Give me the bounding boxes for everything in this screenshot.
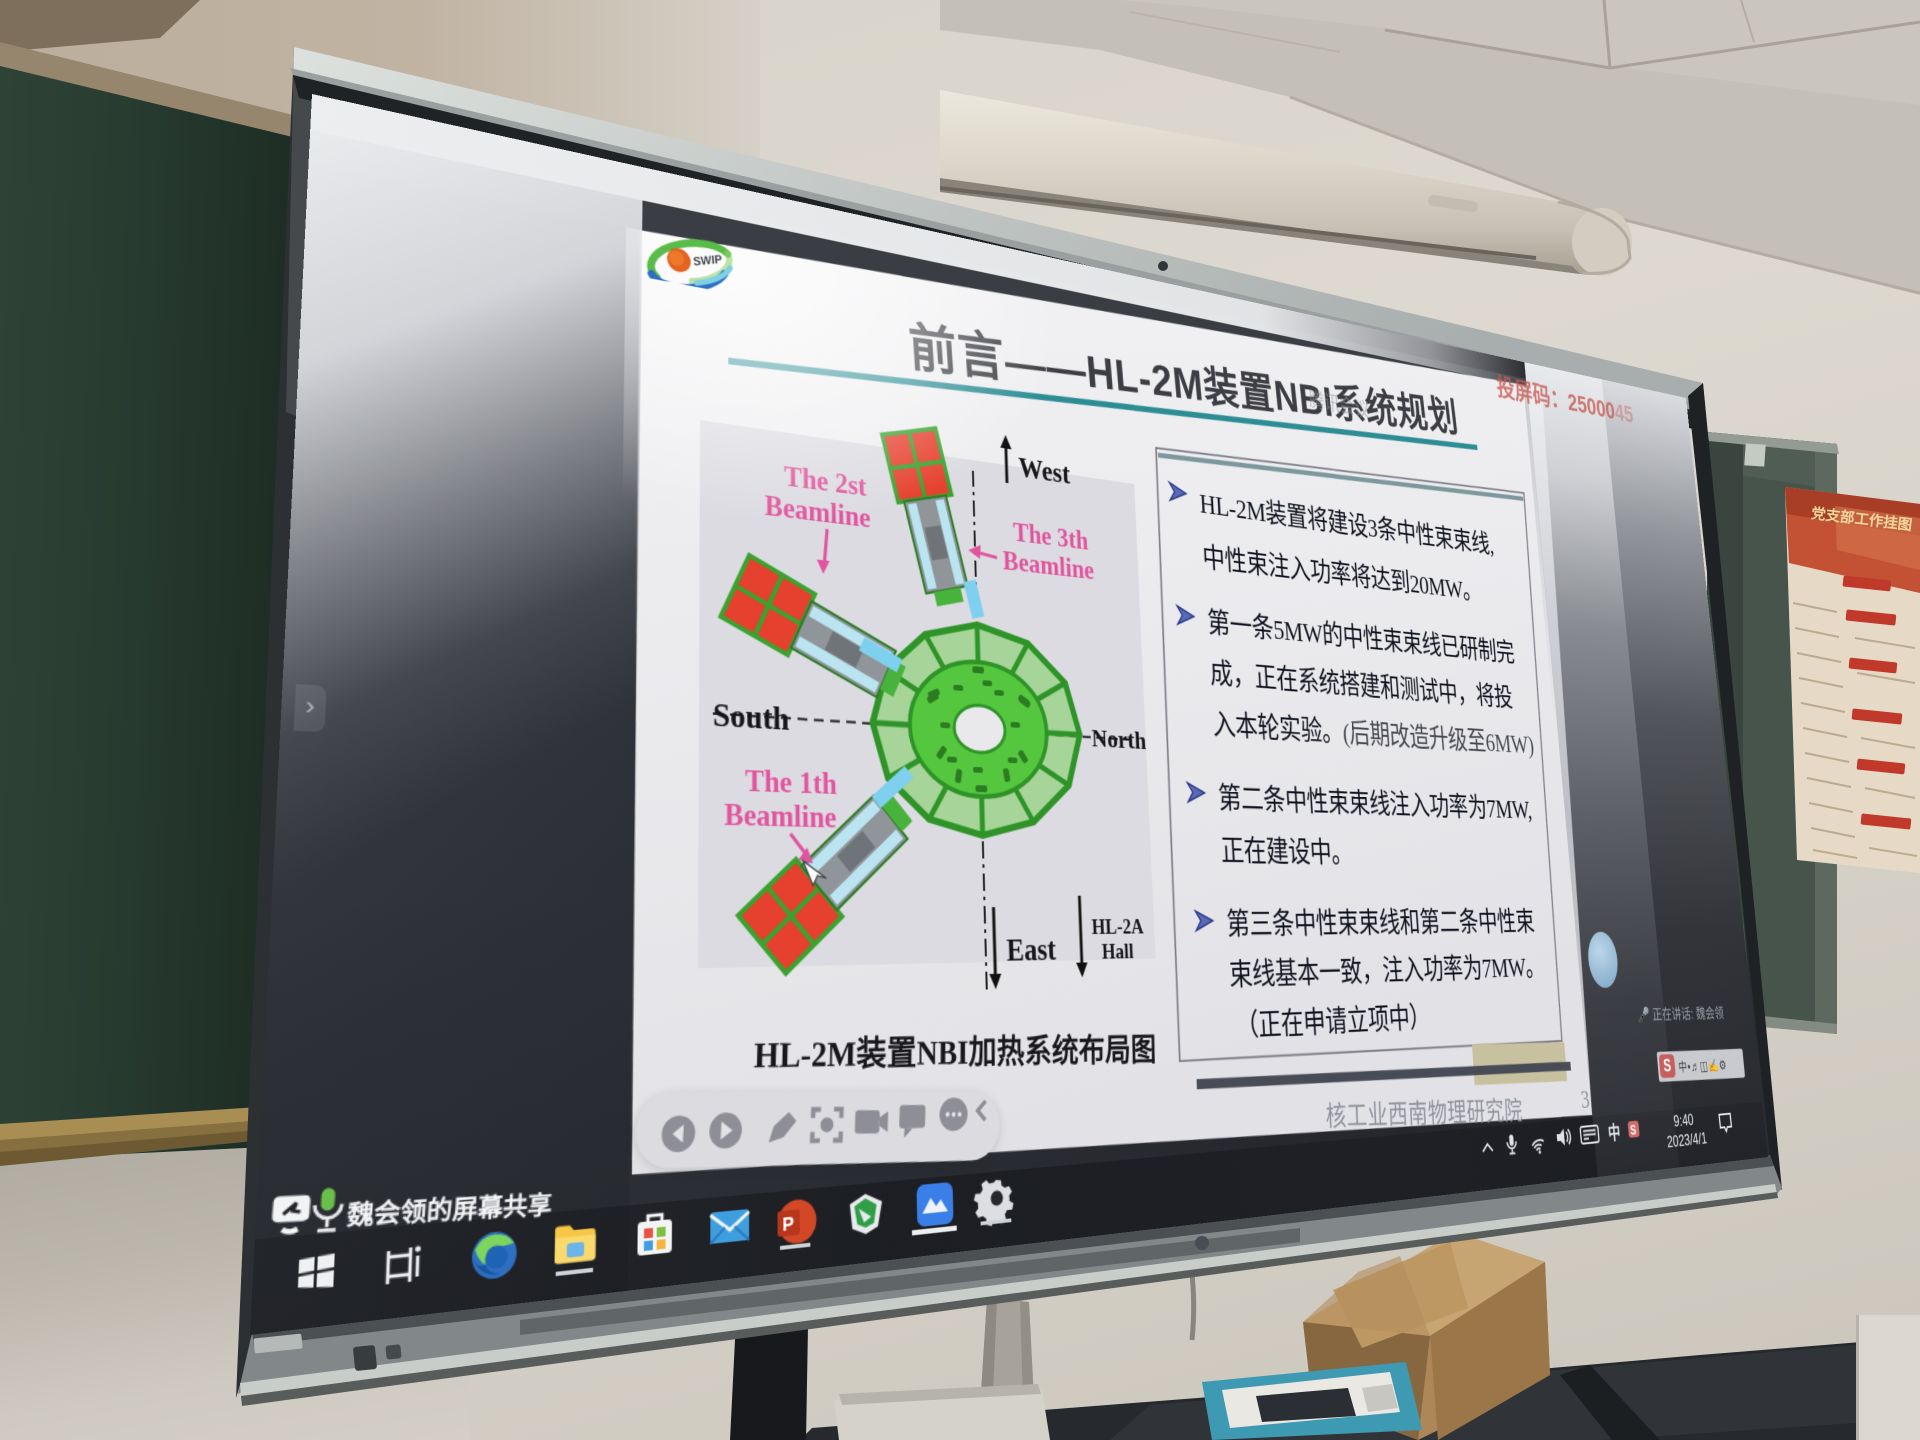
svg-text:South: South bbox=[713, 697, 790, 737]
svg-text:North: North bbox=[1091, 724, 1147, 755]
svg-text:HL-2A: HL-2A bbox=[1091, 915, 1144, 939]
svg-text:SWIP: SWIP bbox=[692, 253, 724, 269]
svg-text:East: East bbox=[1006, 933, 1057, 968]
svg-text:中: 中 bbox=[1607, 1122, 1621, 1144]
svg-text:9:40: 9:40 bbox=[1673, 1110, 1695, 1130]
svg-text:Hall: Hall bbox=[1101, 939, 1134, 963]
svg-text:2023/4/1: 2023/4/1 bbox=[1666, 1129, 1707, 1151]
svg-text:The 1th: The 1th bbox=[745, 764, 837, 801]
svg-text:Beamline: Beamline bbox=[724, 798, 836, 835]
svg-text:P: P bbox=[782, 1212, 794, 1235]
